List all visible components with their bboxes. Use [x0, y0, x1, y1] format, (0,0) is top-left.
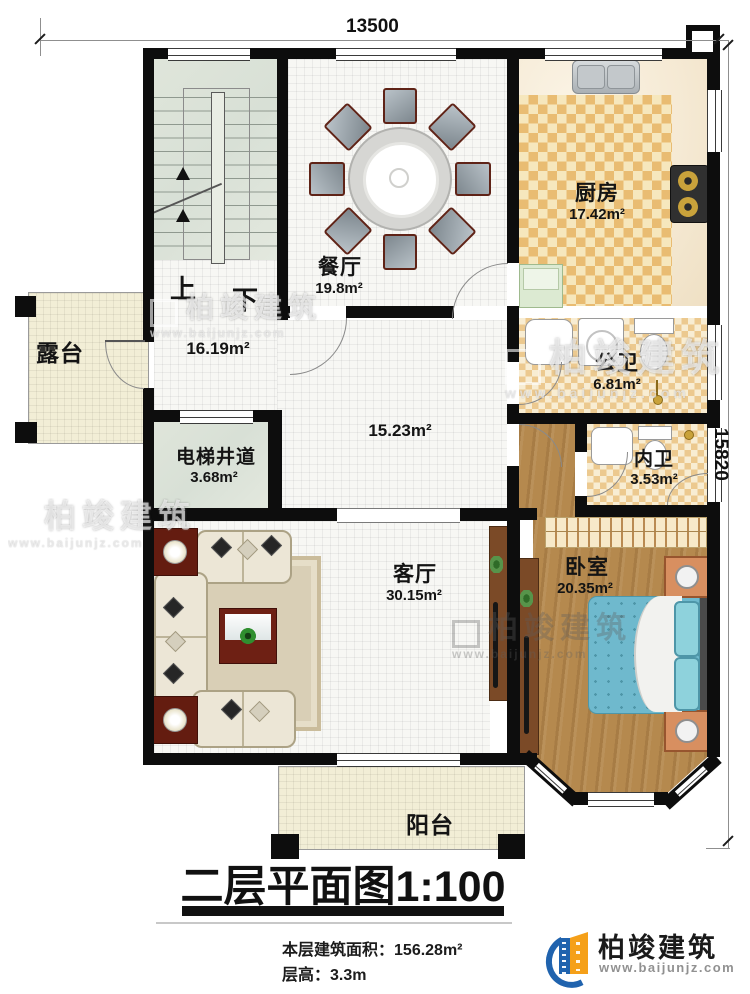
bath-sink: [525, 319, 573, 365]
window-bay-bottom: [588, 792, 654, 807]
elevator-door: [180, 410, 253, 424]
brand-logo: 柏竣建筑 www.baijunjz.com: [544, 918, 744, 988]
table-lamp-icon: [163, 708, 187, 732]
toilet-tank: [634, 318, 674, 334]
floor-area-line: 本层建筑面积：156.28m²: [282, 939, 463, 964]
wall-left: [143, 48, 154, 342]
room-area-dining: 19.8m²: [315, 281, 363, 296]
sofa-bottom: [192, 690, 296, 748]
kitchen-cabinet-door: [523, 268, 559, 290]
toilet-bowl: [640, 334, 668, 370]
stair-arrow-up-icon: [176, 167, 190, 180]
wall-dining-hall: [346, 306, 454, 318]
logo-building-blue-icon: [559, 938, 570, 974]
wall-ensuite-left: [575, 424, 587, 452]
wall-stair-dining: [277, 48, 288, 320]
stove-burner-icon: [678, 197, 698, 217]
wall-hall-living: [282, 508, 337, 521]
table-lamp-icon: [163, 540, 187, 564]
room-label-bedroom: 卧室: [565, 557, 609, 578]
title-divider: [156, 922, 512, 924]
wall-hall-bath: [507, 404, 519, 424]
stair-arrow-up2-icon: [176, 209, 190, 222]
opening-hall-living: [337, 508, 460, 523]
window-living-balcony: [337, 753, 460, 767]
side-table: [152, 528, 198, 576]
balcony-floor: [278, 766, 525, 850]
nightstand-knob-icon: [675, 719, 699, 743]
wall-dining-hall: [277, 306, 290, 318]
terrace-post: [15, 422, 37, 443]
side-table: [152, 696, 198, 744]
watermark-logo-icon: [8, 509, 36, 537]
wall-left: [143, 388, 154, 765]
stove-burner-icon: [678, 171, 698, 191]
wall-hall-bath: [507, 306, 519, 362]
wall-bath-bottom: [519, 413, 707, 424]
wall-bedroom-top-stub: [490, 508, 537, 520]
floor-info: 本层建筑面积：156.28m² 层高：3.3m: [282, 939, 463, 989]
logo-building-orange-icon: [570, 932, 588, 974]
room-label-terrace: 露台: [36, 342, 84, 365]
floorplan-canvas: 上 下: [0, 0, 750, 994]
chimney-flue: [692, 31, 713, 52]
shower-stem: [656, 380, 658, 396]
room-area-living: 30.15m²: [386, 588, 442, 603]
floor-area-label: 本层建筑面积：: [282, 942, 394, 959]
wall-ensuite-bottom: [575, 505, 707, 517]
room-label-public-bath: 公卫: [595, 353, 639, 374]
brand-logo-icon: [546, 930, 592, 980]
room-label-dining: 餐厅: [318, 257, 362, 278]
title-underline: [182, 906, 504, 916]
room-area-bedroom: 20.35m²: [557, 581, 613, 596]
window-dining: [336, 48, 456, 61]
stair-up-label: 上: [170, 276, 196, 302]
dimension-extension: [706, 848, 730, 849]
room-area-public-bath: 6.81m²: [593, 377, 641, 392]
wall-right: [707, 48, 720, 757]
dimension-line-top: [40, 40, 728, 41]
shower-knob-icon: [653, 395, 663, 405]
stair-stringer: [211, 92, 225, 264]
room-area-elevator: 3.68m²: [190, 470, 238, 485]
wall-kitchen-left: [507, 48, 519, 263]
room-label-balcony: 阳台: [406, 814, 454, 837]
terrace-post: [15, 296, 36, 317]
dining-chair: [455, 162, 491, 196]
room-area-hall: 15.23m²: [368, 422, 431, 439]
sliding-door-panel: [489, 526, 509, 701]
plan-title: 二层平面图1:100: [168, 852, 518, 914]
window-public-bath: [707, 325, 722, 400]
plan-title-text: 二层平面图: [181, 863, 396, 911]
room-label-ensuite: 内卫: [634, 450, 674, 469]
wall-elevator-right: [268, 410, 282, 520]
floor-height-label: 层高：: [282, 967, 330, 984]
nightstand-knob-icon: [675, 565, 699, 589]
sliding-door-rail: [507, 520, 520, 753]
ensuite-toilet-tank: [638, 426, 672, 440]
sliding-door-handle: [524, 636, 529, 734]
dimension-right-value: 15820: [709, 428, 731, 481]
floor-height-line: 层高：3.3m: [282, 964, 463, 989]
wall-living-south: [143, 753, 337, 765]
dining-chair: [309, 162, 345, 196]
brand-url: www.baijunjz.com: [599, 960, 735, 975]
bed-pillow: [674, 657, 700, 711]
coffee-table-plant-icon: [239, 627, 257, 645]
wardrobe: [545, 517, 707, 548]
nightstand: [664, 556, 710, 598]
dining-chair: [383, 88, 417, 124]
bed-pillow: [674, 601, 700, 657]
kitchen-sink-basin: [607, 65, 635, 89]
room-label-living: 客厅: [393, 564, 437, 585]
coffee-table: [219, 608, 277, 664]
floor-height-value: 3.3m: [330, 967, 366, 984]
floor-area-value: 156.28m²: [394, 942, 463, 959]
window-kitchen: [545, 48, 662, 61]
plan-title-scale: 1:100: [396, 863, 506, 911]
nightstand: [664, 710, 710, 752]
room-area-kitchen: 17.42m²: [569, 207, 625, 222]
window-stairwell: [168, 48, 250, 61]
dining-table-center: [389, 168, 409, 188]
kitchen-sink-basin: [577, 65, 605, 89]
door-plant-icon: [490, 556, 503, 573]
window-kitchen-east: [707, 90, 722, 152]
dimension-top-value: 13500: [346, 16, 399, 38]
stair-down-label: 下: [232, 287, 258, 313]
dining-chair: [383, 234, 417, 270]
room-label-kitchen: 厨房: [575, 183, 619, 204]
room-area-stair-hall: 16.19m²: [186, 340, 249, 357]
shower-knob-icon: [684, 430, 694, 440]
sliding-door-panel: [519, 558, 539, 755]
wall-elevator-bottom: [143, 508, 282, 521]
door-plant-icon: [520, 590, 533, 607]
wall-elevator-top: [143, 410, 180, 422]
room-area-ensuite: 3.53m²: [630, 472, 678, 487]
terrace-door-leaf: [105, 340, 145, 342]
room-label-elevator: 电梯井道: [176, 448, 256, 467]
sliding-door-handle: [493, 602, 498, 688]
